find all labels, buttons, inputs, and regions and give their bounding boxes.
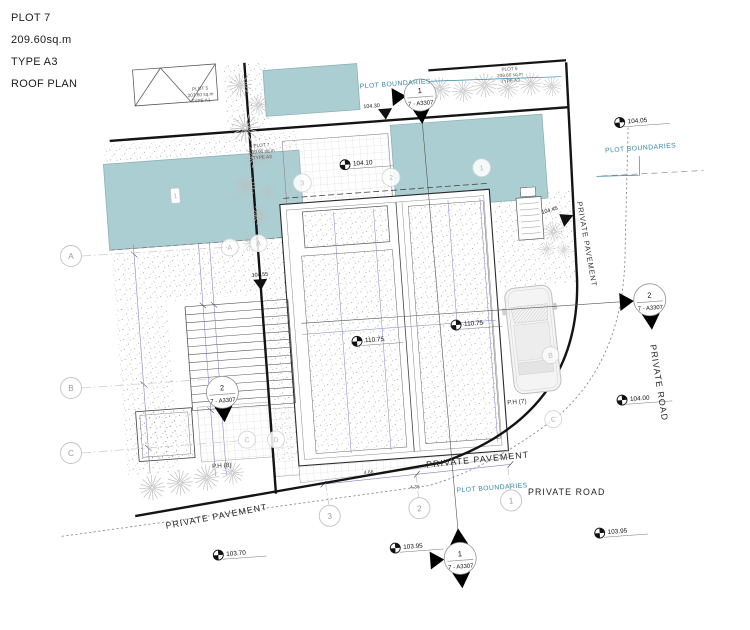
pool-tag-label: 1 <box>173 193 178 200</box>
grid-c-left: C <box>68 449 74 458</box>
roof-planter <box>302 206 389 248</box>
roof-plan-sheet: PLOT 7 209.60sq.m TYPE A3 ROOF PLAN <box>0 0 750 630</box>
plot5-type: TYPE A1 <box>191 97 211 103</box>
private-pavement-bottom-left: PRIVATE PAVEMENT <box>165 502 269 531</box>
grid-2-top: 2 <box>389 175 394 182</box>
grid-a2-faint: A <box>256 241 261 248</box>
grid-b-left: B <box>68 384 74 393</box>
section-left-num: 2 <box>220 383 225 392</box>
plot-area: 209.60sq.m <box>11 33 77 55</box>
roof-gravel-left <box>302 249 407 453</box>
plot-type: TYPE A3 <box>11 55 77 77</box>
plot-boundaries-right: PLOT BOUNDARIES <box>605 142 677 154</box>
spot-104-00: 104.00 <box>630 395 650 403</box>
spot-103-95-a: 103.95 <box>403 543 423 551</box>
private-road-bottom: PRIVATE ROAD <box>528 487 605 497</box>
spot-110-75-a: 110.75 <box>365 336 385 344</box>
plan-drawing: 1 <box>0 0 750 630</box>
spot-103-70: 103.70 <box>226 550 246 558</box>
dim-4-36: 4.36 <box>410 484 420 491</box>
grid-d-faint: D <box>273 437 279 444</box>
grid-1-top: 1 <box>480 165 485 172</box>
grid-a-faint: A <box>227 245 232 252</box>
spot-104-10: 104.10 <box>353 159 373 167</box>
grid-a-left: A <box>68 252 74 261</box>
plot-title: PLOT 7 <box>11 11 77 33</box>
grid-3-top: 3 <box>300 180 305 187</box>
car <box>500 284 566 395</box>
pool-plot6 <box>263 64 360 117</box>
plot6-type: TYPE A3 <box>501 78 521 84</box>
ph7-label: P.H (7) <box>507 398 527 406</box>
spot-110-75-b: 110.75 <box>464 320 484 328</box>
grid-c2-faint: C <box>551 416 557 423</box>
terrace-paving <box>282 134 392 205</box>
ph8-label: P.H (8) <box>212 462 232 470</box>
grid-c-faint: C <box>244 437 250 444</box>
section-bottom-num: 1 <box>457 549 462 558</box>
private-pavement-right: PRIVATE PAVEMENT <box>575 201 599 288</box>
spot-103-95-b: 103.95 <box>607 528 627 536</box>
plan-group: 1 <box>26 29 733 618</box>
grid-b-faint: B <box>548 353 553 360</box>
section-marker-right: 2 7 - A3307 <box>619 283 668 332</box>
section-top-num: 1 <box>417 86 422 95</box>
pool-plot5 <box>103 150 305 250</box>
spot-104-55: 104.55 <box>251 272 268 279</box>
section-right-num: 2 <box>647 291 652 300</box>
spot-104-05: 104.05 <box>627 117 647 125</box>
spot-104-30: 104.30 <box>363 103 380 110</box>
title-block: PLOT 7 209.60sq.m TYPE A3 ROOF PLAN <box>11 11 77 99</box>
section-marker-bottom: 1 7 - A3307 <box>428 527 478 590</box>
private-road-right: PRIVATE ROAD <box>648 344 670 422</box>
planter-bottom-left <box>136 408 196 462</box>
view-name: ROOF PLAN <box>11 77 77 99</box>
